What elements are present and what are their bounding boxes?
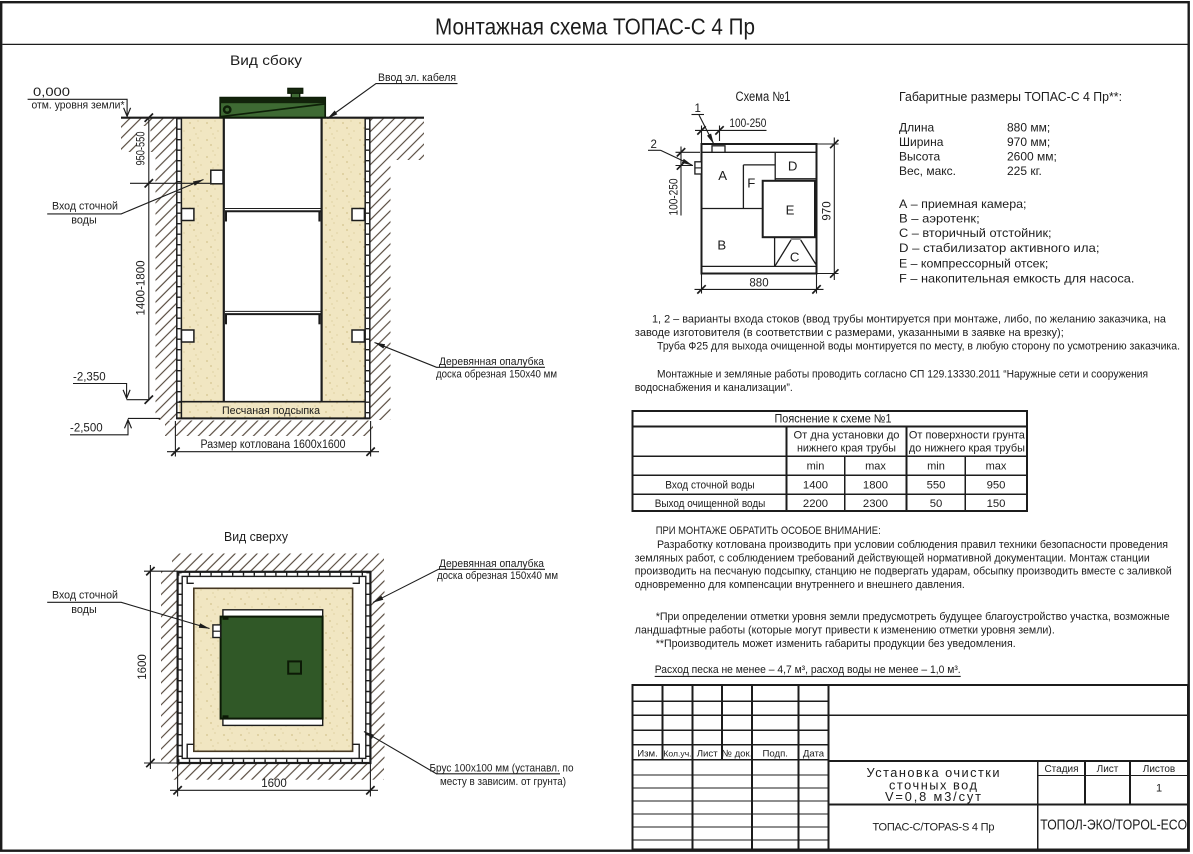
svg-text:Вход сточной: Вход сточной	[52, 590, 118, 602]
svg-text:**Производитель может изменить: **Производитель может изменить габариты …	[656, 638, 1016, 650]
svg-text:*При определении отметки уровн: *При определении отметки уровня земли пр…	[656, 611, 1170, 623]
svg-text:Е – компрессорный отсек;: Е – компрессорный отсек;	[899, 257, 1048, 271]
svg-text:Вход сточной: Вход сточной	[52, 201, 118, 213]
svg-text:воды: воды	[71, 215, 97, 227]
svg-text:Ввод эл. кабеля: Ввод эл. кабеля	[378, 72, 456, 84]
svg-text:ТОПОЛ-ЭКО/TOPOL-ECO: ТОПОЛ-ЭКО/TOPOL-ECO	[1040, 818, 1187, 834]
svg-text:Схема №1: Схема №1	[736, 89, 791, 104]
svg-text:производить на песчаную подсып: производить на песчаную подсыпку, станци…	[635, 566, 1172, 578]
svg-text:заводе изготовителя (в соответ: заводе изготовителя (в соответствии с ра…	[635, 327, 1064, 339]
svg-text:V=0,8 м3/сут: V=0,8 м3/сут	[885, 789, 981, 804]
svg-text:№ док.: № док.	[722, 748, 753, 759]
svg-text:ПРИ МОНТАЖЕ ОБРАТИТЬ ОСОБОЕ ВН: ПРИ МОНТАЖЕ ОБРАТИТЬ ОСОБОЕ ВНИМАНИЕ:	[656, 525, 881, 537]
svg-text:Вес, макс.: Вес, макс.	[899, 164, 956, 178]
svg-text:Брус 100x100 мм (устанавл. по: Брус 100x100 мм (устанавл. по	[430, 763, 574, 775]
svg-text:950-550: 950-550	[136, 132, 148, 166]
svg-text:А – приемная камера;: А – приемная камера;	[899, 197, 1027, 211]
svg-text:отм. уровня земли*: отм. уровня земли*	[32, 100, 125, 112]
svg-text:От поверхности грунта: От поверхности грунта	[909, 430, 1026, 442]
svg-text:Ширина: Ширина	[899, 135, 944, 149]
svg-text:С – вторичный отстойник;: С – вторичный отстойник;	[899, 226, 1052, 240]
svg-text:C: C	[790, 250, 800, 265]
svg-text:Деревянная опалубка: Деревянная опалубка	[439, 356, 544, 368]
svg-text:970: 970	[822, 201, 834, 220]
svg-text:В – аэротенк;: В – аэротенк;	[899, 212, 980, 226]
svg-text:Вид сверху: Вид сверху	[224, 529, 288, 544]
svg-text:A: A	[718, 168, 727, 183]
svg-text:Лист: Лист	[697, 748, 718, 759]
svg-text:880: 880	[749, 278, 768, 290]
svg-text:150: 150	[987, 498, 1006, 510]
svg-text:2200: 2200	[803, 498, 828, 510]
svg-text:2300: 2300	[863, 498, 888, 510]
svg-text:Вид сбоку: Вид сбоку	[230, 53, 302, 68]
svg-text:950: 950	[987, 480, 1006, 492]
svg-text:Дата: Дата	[803, 748, 825, 759]
svg-text:1400-1800: 1400-1800	[136, 261, 148, 316]
svg-text:От дна установки до: От дна установки до	[794, 430, 900, 442]
svg-text:min: min	[807, 461, 825, 473]
svg-text:одновременно для компенсации в: одновременно для компенсации внутреннего…	[635, 579, 965, 591]
svg-text:Габаритные размеры ТОПАС-С 4 П: Габаритные размеры ТОПАС-С 4 Пр**:	[899, 90, 1122, 104]
svg-text:Высота: Высота	[899, 150, 941, 164]
svg-text:1600: 1600	[261, 778, 287, 790]
svg-text:max: max	[865, 461, 886, 473]
svg-text:Выход очищенной воды: Выход очищенной воды	[655, 498, 766, 510]
svg-text:воды: воды	[71, 604, 97, 616]
svg-text:F – накопительная емкость для: F – накопительная емкость для насоса.	[899, 272, 1134, 286]
svg-text:доска обрезная 150x40 мм: доска обрезная 150x40 мм	[436, 368, 557, 380]
svg-text:880 мм;: 880 мм;	[1007, 121, 1050, 135]
svg-text:Лист: Лист	[1097, 764, 1119, 775]
svg-text:min: min	[927, 461, 945, 473]
svg-text:D: D	[788, 159, 798, 174]
svg-text:D – стабилизатор активного ила: D – стабилизатор активного ила;	[899, 241, 1100, 255]
svg-text:водоснабжения и канализации”.: водоснабжения и канализации”.	[635, 382, 793, 394]
svg-text:Песчаная подсыпка: Песчаная подсыпка	[222, 405, 320, 417]
svg-text:Листов: Листов	[1143, 764, 1176, 775]
svg-text:Подп.: Подп.	[762, 748, 787, 759]
svg-text:Монтажные и земляные работы пр: Монтажные и земляные работы проводить со…	[657, 369, 1148, 381]
svg-text:100-250: 100-250	[729, 118, 766, 130]
svg-text:Пояснение к схеме №1: Пояснение к схеме №1	[775, 412, 892, 426]
svg-text:1, 2 – варианты входа стоков: 1, 2 – варианты входа стоков (ввод трубы…	[652, 314, 1167, 326]
svg-text:Расход песка не менее – 4,7 м³: Расход песка не менее – 4,7 м³, расход в…	[655, 664, 961, 676]
svg-text:1800: 1800	[863, 480, 888, 492]
svg-text:2: 2	[651, 139, 657, 151]
svg-text:B: B	[717, 238, 726, 253]
svg-text:нижнего края трубы: нижнего края трубы	[797, 443, 896, 455]
svg-text:Стадия: Стадия	[1044, 764, 1078, 775]
svg-text:Труба Ф25 для выхода очищенной: Труба Ф25 для выхода очищенной воды монт…	[657, 341, 1180, 353]
svg-text:1: 1	[695, 103, 701, 115]
svg-text:max: max	[986, 461, 1007, 473]
svg-text:Деревянная опалубка: Деревянная опалубка	[439, 558, 544, 570]
svg-text:ландшафтные работы (которые мо: ландшафтные работы (которые могут привес…	[635, 624, 1055, 636]
svg-text:550: 550	[927, 480, 946, 492]
svg-text:Вход сточной воды: Вход сточной воды	[665, 480, 754, 492]
svg-text:2600 мм;: 2600 мм;	[1007, 150, 1057, 164]
svg-text:1400: 1400	[803, 480, 828, 492]
svg-text:0,000: 0,000	[33, 87, 70, 99]
svg-text:E: E	[786, 203, 795, 218]
svg-text:100-250: 100-250	[669, 179, 681, 216]
svg-text:Изм.: Изм.	[637, 748, 658, 759]
svg-text:Длина: Длина	[899, 121, 934, 135]
svg-text:Кол.уч.: Кол.уч.	[663, 748, 691, 758]
svg-text:1: 1	[1156, 783, 1162, 795]
svg-text:1600: 1600	[137, 654, 149, 680]
svg-text:F: F	[747, 176, 755, 191]
svg-text:Размер котлована 1600х1600: Размер котлована 1600х1600	[201, 439, 346, 451]
svg-text:970 мм;: 970 мм;	[1007, 135, 1050, 149]
svg-text:50: 50	[930, 498, 943, 510]
svg-text:Разработку котлована производи: Разработку котлована производить при усл…	[657, 539, 1168, 551]
svg-text:до нижнего края трубы: до нижнего края трубы	[909, 443, 1025, 455]
svg-text:Монтажная схема ТОПАС-С 4 Пр: Монтажная схема ТОПАС-С 4 Пр	[435, 14, 755, 40]
svg-text:месту в зависим. от грунта): месту в зависим. от грунта)	[440, 776, 566, 788]
svg-text:225 кг.: 225 кг.	[1007, 164, 1042, 178]
svg-text:доска обрезная 150x40 мм: доска обрезная 150x40 мм	[437, 570, 558, 582]
svg-text:-2,350: -2,350	[73, 372, 106, 384]
svg-text:ТОПАС-С/TOPAS-S 4 Пр: ТОПАС-С/TOPAS-S 4 Пр	[873, 822, 995, 834]
svg-text:земляных работ, с соблюдением: земляных работ, с соблюдением требований…	[635, 552, 1150, 564]
svg-text:-2,500: -2,500	[70, 423, 103, 435]
